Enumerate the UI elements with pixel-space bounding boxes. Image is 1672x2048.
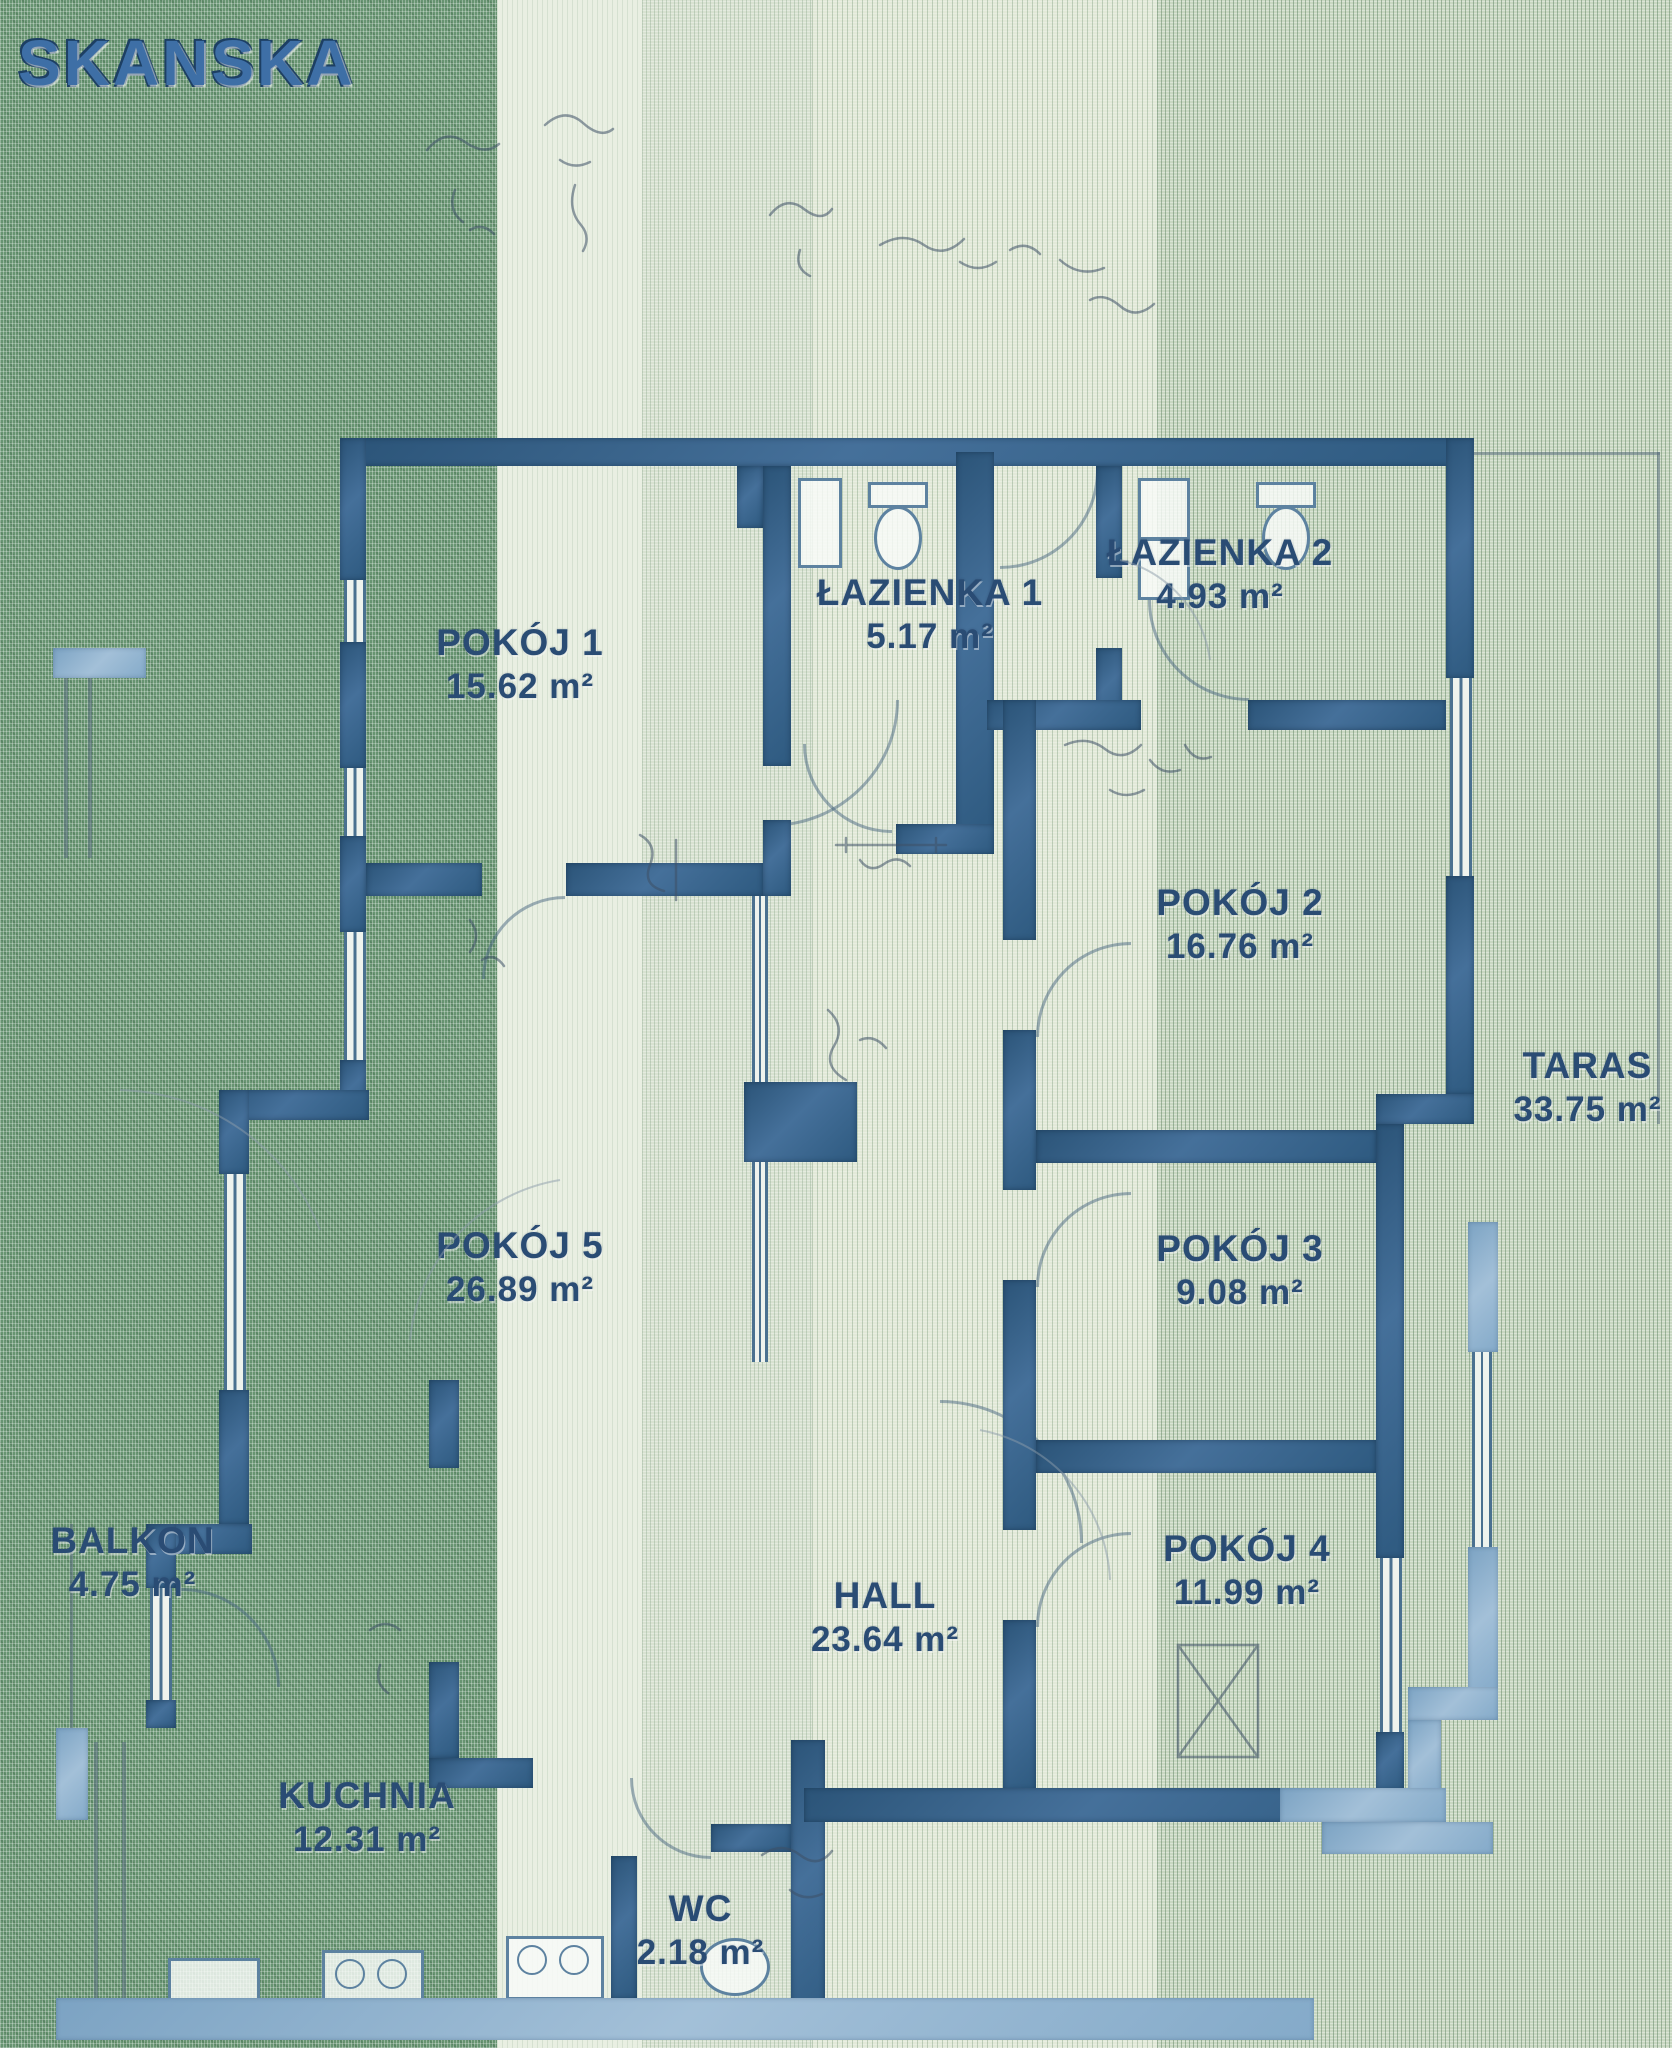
thin-partition xyxy=(752,1162,768,1362)
room-label-pokoj-3: POKÓJ 3 9.08 m² xyxy=(1140,1228,1340,1314)
scan-texture-band xyxy=(642,0,812,2048)
wall-segment xyxy=(1376,1094,1474,1124)
room-label-pokoj-5: POKÓJ 5 26.89 m² xyxy=(420,1225,620,1311)
bottom-terrace-wall xyxy=(56,1998,1314,2040)
wall-segment xyxy=(896,824,994,854)
room-label-lazienka-1: ŁAZIENKA 1 5.17 m² xyxy=(795,572,1065,658)
wall-segment xyxy=(1036,1130,1376,1163)
wall-segment xyxy=(1446,876,1474,1094)
wall-segment xyxy=(791,1740,825,2040)
scan-texture-band xyxy=(497,0,642,2048)
wall-segment xyxy=(1036,1440,1376,1473)
wall-segment xyxy=(340,438,1474,466)
window xyxy=(1380,1558,1402,1732)
room-area: 5.17 m² xyxy=(795,615,1065,659)
balcony-railing xyxy=(88,678,92,858)
kitchen-sink-icon xyxy=(322,1950,424,2002)
balcony-railing xyxy=(122,1742,126,1998)
room-name: POKÓJ 4 xyxy=(1142,1528,1352,1571)
room-area: 26.89 m² xyxy=(420,1268,620,1312)
terrace-wall xyxy=(1280,1788,1446,1822)
room-label-balkon: BALKON 4.75 m² xyxy=(40,1520,225,1606)
burner-icon xyxy=(559,1945,589,1975)
wall-segment xyxy=(366,863,482,896)
terrace-wall xyxy=(1468,1222,1498,1352)
room-label-kuchnia: KUCHNIA 12.31 m² xyxy=(262,1775,472,1861)
room-name: BALKON xyxy=(40,1520,225,1563)
room-name: TARAS xyxy=(1505,1045,1670,1088)
room-area: 15.62 m² xyxy=(420,665,620,709)
terrace-window xyxy=(1472,1352,1492,1547)
room-label-hall: HALL 23.64 m² xyxy=(780,1575,990,1661)
terrace-wall xyxy=(1408,1720,1441,1792)
room-area: 4.93 m² xyxy=(1085,575,1355,619)
toilet-icon xyxy=(868,482,928,508)
window xyxy=(344,932,366,1060)
wall-segment xyxy=(146,1700,176,1728)
toilet-icon xyxy=(874,506,922,570)
wall-segment xyxy=(737,466,763,528)
terrace-outline xyxy=(1657,452,1660,1124)
room-label-pokoj-1: POKÓJ 1 15.62 m² xyxy=(420,622,620,708)
toilet-icon xyxy=(1256,482,1316,508)
terrace-wall xyxy=(1468,1547,1498,1692)
wall-segment xyxy=(340,836,366,932)
balcony-wall xyxy=(56,1728,88,1820)
room-name: POKÓJ 2 xyxy=(1135,882,1345,925)
wall-segment xyxy=(763,466,791,766)
wall-segment xyxy=(1003,1280,1036,1530)
room-name: HALL xyxy=(780,1575,990,1618)
wall-segment xyxy=(340,438,366,580)
floor-plan-canvas: SKANSKA xyxy=(0,0,1672,2048)
window xyxy=(344,580,366,642)
room-label-pokoj-4: POKÓJ 4 11.99 m² xyxy=(1142,1528,1352,1614)
balcony-railing xyxy=(64,678,68,858)
room-area: 2.18 m² xyxy=(608,1931,793,1975)
room-name: POKÓJ 1 xyxy=(420,622,620,665)
room-area: 12.31 m² xyxy=(262,1818,472,1862)
window xyxy=(344,768,366,836)
window xyxy=(1450,678,1472,876)
washbasin-icon xyxy=(798,478,842,568)
room-label-pokoj-2: POKÓJ 2 16.76 m² xyxy=(1135,882,1345,968)
wall-segment xyxy=(429,1380,459,1468)
neighbor-balcony-wall xyxy=(53,648,146,678)
wall-segment xyxy=(219,1090,249,1174)
stove-icon xyxy=(506,1936,604,2000)
room-name: POKÓJ 3 xyxy=(1140,1228,1340,1271)
room-name: WC xyxy=(608,1888,793,1931)
room-area: 16.76 m² xyxy=(1135,925,1345,969)
window xyxy=(224,1174,246,1390)
burner-icon xyxy=(517,1945,547,1975)
wall-segment xyxy=(340,642,366,768)
room-name: ŁAZIENKA 1 xyxy=(795,572,1065,615)
terrace-outline xyxy=(1474,452,1660,455)
counter-icon xyxy=(168,1958,260,2002)
room-label-lazienka-2: ŁAZIENKA 2 4.93 m² xyxy=(1085,532,1355,618)
terrace-wall xyxy=(1322,1822,1493,1854)
room-name: ŁAZIENKA 2 xyxy=(1085,532,1355,575)
appliance-icon xyxy=(1138,478,1190,540)
wall-segment xyxy=(1003,1620,1036,1790)
room-label-wc: WC 2.18 m² xyxy=(608,1888,793,1974)
wall-segment xyxy=(219,1390,249,1524)
sink-bowl-icon xyxy=(377,1959,407,1989)
thin-partition xyxy=(752,896,768,1082)
wall-segment xyxy=(429,1662,459,1758)
room-area: 4.75 m² xyxy=(40,1563,225,1607)
sink-bowl-icon xyxy=(335,1959,365,1989)
wall-segment xyxy=(1376,1124,1404,1558)
wall-segment xyxy=(1446,438,1474,678)
wall-segment xyxy=(1003,700,1036,940)
wall-segment xyxy=(566,863,763,896)
skanska-logo: SKANSKA xyxy=(18,26,355,100)
room-name: KUCHNIA xyxy=(262,1775,472,1818)
room-area: 9.08 m² xyxy=(1140,1271,1340,1315)
room-label-taras: TARAS 33.75 m² xyxy=(1505,1045,1670,1131)
wall-segment xyxy=(711,1824,791,1852)
room-area: 11.99 m² xyxy=(1142,1571,1352,1615)
balcony-railing xyxy=(94,1742,98,1998)
room-name: POKÓJ 5 xyxy=(420,1225,620,1268)
shaft-block xyxy=(744,1082,857,1162)
wall-segment xyxy=(1003,1030,1036,1190)
wall-segment xyxy=(1248,700,1446,730)
wall-segment xyxy=(763,820,791,896)
wall-segment xyxy=(1376,1732,1404,1790)
room-area: 23.64 m² xyxy=(780,1618,990,1662)
room-area: 33.75 m² xyxy=(1505,1088,1670,1132)
terrace-wall xyxy=(1408,1687,1498,1720)
